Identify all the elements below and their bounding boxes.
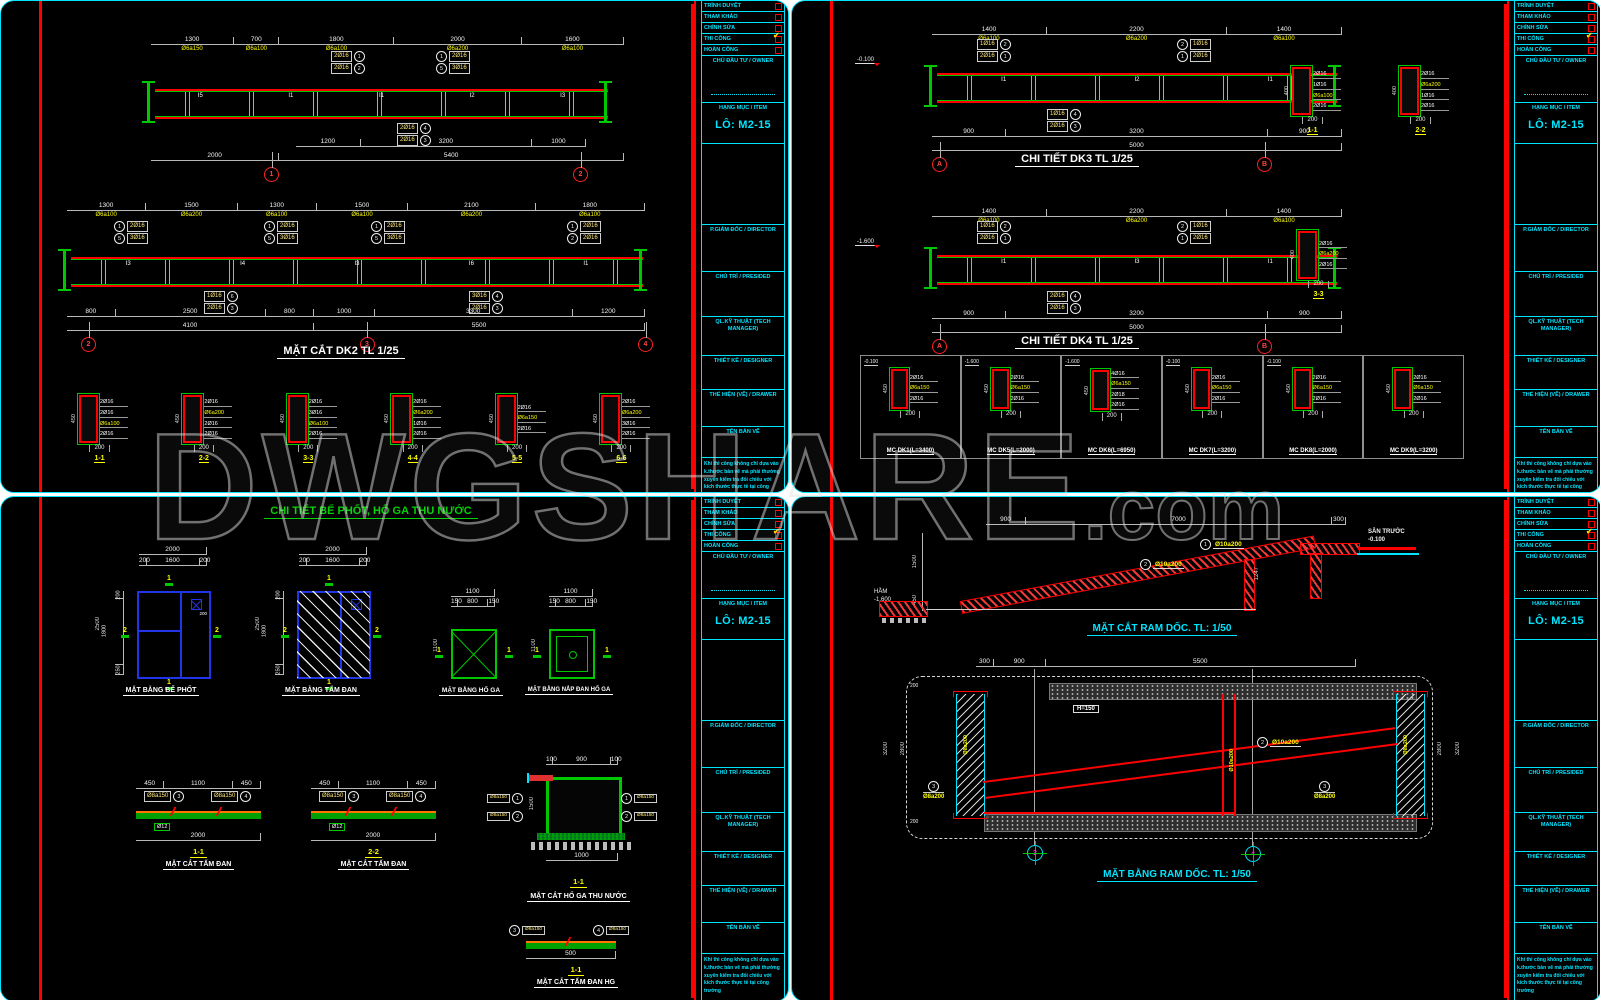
section-title: 4-4 — [408, 455, 418, 463]
detail-dk3: -0.100 1400Ø6a1002200Ø6a2001400Ø6a100 I1… — [847, 15, 1357, 175]
section-rect — [392, 395, 411, 443]
grid-bubble: 4 — [638, 337, 653, 352]
footing — [537, 833, 625, 840]
ramp-plan-title: MẶT BẰNG RAM DỐC. TL: 1/50 — [1007, 869, 1347, 880]
section-name: MẶT CẮT TẤM ĐAN — [126, 861, 271, 868]
rebar-callout: 2Ø1613Ø165 — [264, 221, 298, 245]
dk4-section: 400 2Ø16 Ø6a200 2Ø16 200 3-3 — [1290, 231, 1380, 299]
section-rect — [601, 395, 620, 443]
approval-row: CHỈNH SỬA — [702, 23, 784, 34]
dim-row: 5000 — [932, 143, 1342, 151]
beam-section-card: 450 2Ø16 2Ø16 Ø6a100 2Ø16 200 1-1 — [71, 395, 128, 463]
dim-row: 8002500800100033001200 — [67, 309, 645, 317]
mc-cell: -1.600 450 2Ø16 Ø6a150 2Ø16 200 MC DK5(L… — [961, 355, 1062, 459]
dim-row: 1300Ø6a150700Ø6a1001800Ø6a1002000Ø6a2001… — [151, 37, 624, 45]
mc-cell: -1.600 450 4Ø16 Ø6a150 2Ø18 2Ø16 200 MC … — [1061, 355, 1162, 459]
grid-bubble: B — [1257, 157, 1272, 172]
beam-elevation-1: 1300Ø6a150700Ø6a1001800Ø6a1002000Ø6a2001… — [81, 25, 646, 179]
left-footing — [879, 601, 928, 617]
sheet-top-right: -0.100 1400Ø6a1002200Ø6a2001400Ø6a100 I1… — [791, 0, 1600, 493]
lot-code: LÔ: M2-15 — [702, 615, 784, 627]
section-rect — [183, 395, 202, 443]
checkbox — [775, 510, 782, 517]
beam-section-card: 450 2Ø16 Ø6a150 2Ø16 200 5-5 — [489, 395, 546, 463]
sheet-top-left: 1300Ø6a150700Ø6a1001800Ø6a1002000Ø6a2001… — [0, 0, 789, 493]
lid-section-hg: 3Ø8a150 Ø8a1504 500 1-1 MẶT CẮT TẤM ĐAN … — [501, 925, 651, 997]
sheet-bl-content: CHI TIẾT BỂ PHỐT, HỐ GA THU NƯỚC 2000 20… — [1, 497, 690, 1000]
top-landing — [1300, 543, 1360, 555]
slab-section-2: Ø8a1503 Ø8a1504 4501100450 Ø12 2000 2-2 … — [301, 785, 446, 885]
concrete-band-bottom — [984, 814, 1417, 832]
designer-cell: THIẾT KẾ / DESIGNER — [702, 356, 784, 390]
dim-row: 20005400 — [151, 153, 624, 161]
elevation-mark: -1.600 — [855, 239, 876, 246]
ramp-plan: 3009005500 H=150 2Ø10a200 Ø10a200 3Ø8a20… — [877, 657, 1477, 892]
beam-section-card: 400 2Ø16 Ø6a200 2Ø16 200 3-3 — [1290, 231, 1347, 299]
grid-bubble: 2 — [573, 167, 588, 182]
mc-title: MC DK8(L=2000) — [1289, 448, 1337, 455]
drawing-title-dk2: MẶT CẮT DK2 TL 1/25 — [121, 345, 561, 357]
dim-segment: 1800Ø6a100 — [279, 37, 394, 45]
check-icon: ✔ — [773, 527, 780, 536]
rebar-callout: 3Ø8a200 — [1314, 781, 1335, 800]
president-cell: CHỦ TRÌ / PRESIDED — [702, 272, 784, 317]
lot-code: LÔ: M2-15 — [1515, 615, 1597, 627]
dim-segment: 2000Ø6a200 — [394, 37, 521, 45]
rebar-label: Ø12 — [154, 823, 170, 831]
lot-code: LÔ: M2-15 — [1515, 119, 1597, 131]
plan-title: MẶT BẰNG TẤM ĐAN — [251, 687, 391, 694]
section-title: 6-6 — [616, 455, 626, 463]
tech-cell: QL.KỸ THUẬT (TECH MANAGER) — [702, 317, 784, 356]
beam-elevation-2: 1300Ø6a1001500Ø6a2001300Ø6a1001500Ø6a100… — [19, 191, 659, 351]
checkbox: ✔ — [775, 532, 782, 539]
rebar-callout: 12Ø1653Ø16 — [114, 221, 148, 245]
approval-rows: TRÌNH DUYỆT THAM KHẢO CHỈNH SỬA — [702, 1, 784, 56]
rebar-callout: 2Ø10a200 — [1257, 737, 1301, 748]
beam-end-left — [63, 249, 73, 291]
approval-rows: TRÌNH DUYỆT THAM KHẢO CHỈNH SỬA — [1515, 1, 1597, 56]
wall-strip-left — [956, 694, 985, 816]
checkbox — [775, 543, 782, 550]
mc-title: MC DK5(L=2000) — [987, 448, 1035, 455]
dim-row: 9007000300 — [986, 517, 1346, 525]
rebar-callout: 2Ø10a200 — [1140, 559, 1184, 570]
plan-ho-ga: 1100 150800150 1100 1 1 MẶT BẰNG HỐ GA — [421, 589, 521, 701]
plan-nap-dan: 1100 150800150 1100 1 1 MẶT BẰNG NẮP ĐAN… — [519, 589, 619, 701]
dim-row: 1400Ø6a1002200Ø6a2001400Ø6a100 — [932, 27, 1342, 35]
dk3-sections: 400 2Ø16 1Ø16 Ø6a100 2Ø16 200 1-1 — [1284, 67, 1449, 135]
director-cell: P.GIÁM ĐỐC / DIRECTOR — [702, 225, 784, 272]
dim-row: 9003200900 — [932, 311, 1342, 319]
plan-be-phot: 2000 2001600200 2500 2001800250 200 1 1 … — [91, 547, 231, 699]
beam-marks: I1I2I1 — [937, 75, 1337, 85]
dim-segment: 1600Ø6a100 — [522, 37, 624, 45]
beam-section-card: 400 2Ø16 Ø6a200 1Ø16 2Ø16 200 2-2 — [1392, 67, 1449, 135]
elevation-mark: -1.600 — [1065, 359, 1079, 366]
beam-end-left — [147, 81, 157, 123]
elevation-mark: -0.100 — [1166, 359, 1180, 366]
rebar-callout: 1Ø10a200 — [1200, 539, 1244, 550]
empty-cell — [702, 144, 784, 225]
plan-title: MẶT BẰNG BỂ PHỐT — [91, 687, 231, 694]
sheet-tr-content: -0.100 1400Ø6a1002200Ø6a2001400Ø6a100 I1… — [792, 1, 1503, 492]
section-rect — [497, 395, 516, 443]
tank-outline: 200 — [137, 591, 211, 679]
checkbox — [1588, 543, 1595, 550]
checkbox — [1588, 3, 1595, 10]
beam-sections: 450 2Ø16 2Ø16 Ø6a100 2Ø16 200 1-1 — [71, 395, 650, 463]
beam-marks: I5I1I1I2I3 — [155, 91, 608, 101]
beam-marks: I1I3I1 — [937, 257, 1337, 267]
check-icon: ✔ — [773, 31, 780, 40]
mc-title: MC DK9(L=3200) — [1390, 448, 1438, 455]
mc-section-table: -0.100 450 2Ø16 Ø6a150 2Ø16 200 MC DK1(L… — [860, 355, 1464, 459]
ramp-section-title: MẶT CẮT RAM DỐC. TL: 1/50 — [1002, 623, 1322, 634]
plan-tam-dan: 2000 2001600200 2500 2001800250 1 1 2 2 … — [251, 547, 391, 699]
checkbox — [775, 14, 782, 21]
mc-title: MC DK6(L=6950) — [1088, 448, 1136, 455]
checkbox — [1588, 510, 1595, 517]
title-block: TRÌNH DUYỆT THAM KHẢO CHỈNH SỬA — [694, 1, 788, 492]
section-title: 2-2 — [199, 455, 209, 463]
approval-rows: TRÌNH DUYỆT THAM KHẢO CHỈNH SỬA — [702, 497, 784, 552]
grid-bubble: 1 — [264, 167, 279, 182]
title-block: TRÌNH DUYỆT THAM KHẢO CHỈNH SỬA — [694, 497, 788, 1000]
section-number: 1-1 — [126, 847, 271, 856]
checkbox — [775, 47, 782, 54]
elevation-mark: -1.600 — [965, 359, 979, 366]
hatch-overlay — [297, 591, 370, 678]
rebar-callout: 3Ø8a200 — [923, 781, 944, 800]
rebar-callout: 1Ø1622Ø161 — [1177, 39, 1211, 63]
approval-row: THAM KHẢO — [702, 12, 784, 23]
check-icon: ✔ — [1586, 527, 1593, 536]
checkbox — [1588, 499, 1595, 506]
dim-row: 1400Ø6a1002200Ø6a2001400Ø6a100 — [932, 209, 1342, 217]
rebar-callout: 2Ø1613Ø165 — [436, 51, 470, 75]
dim-segment: 700Ø6a100 — [234, 37, 279, 45]
site-note: Khi thi công không chỉ dựa vào k.thước b… — [702, 458, 784, 493]
grid-bubble: 4 — [1245, 846, 1261, 862]
drawer-cell: THỂ HIỆN (VẼ) / DRAWER — [702, 390, 784, 427]
dim-row: 9003200900 — [932, 129, 1342, 137]
rebar-callout: 2Ø1612Ø162 — [567, 221, 601, 245]
wall-strip-right — [1396, 694, 1425, 816]
grid-bubbles: 12 — [264, 167, 588, 182]
section-rect — [79, 395, 98, 443]
slab-bar — [136, 811, 261, 819]
section-mark: 1 — [165, 575, 173, 586]
beam-section-card: 450 2Ø16 Ø6a200 2Ø16 2Ø16 200 2-2 — [175, 395, 232, 463]
rebar-callout: 2Ø1612Ø162 — [331, 51, 365, 75]
rebar-callout-vertical: Ø10a200 — [1229, 749, 1235, 772]
checkbox — [1588, 47, 1595, 54]
checkbox: ✔ — [775, 36, 782, 43]
sheet-bottom-left: CHI TIẾT BỂ PHỐT, HỐ GA THU NƯỚC 2000 20… — [0, 496, 789, 1000]
section-title: 1-1 — [94, 455, 104, 463]
beam-marks: I3I4I3I6I1 — [71, 259, 643, 269]
item-cell: HẠNG MỤC / ITEMLÔ: M2-15 — [702, 103, 784, 144]
dim-row: 120032001000 — [296, 139, 586, 147]
checkbox: ✔ — [1588, 532, 1595, 539]
front-yard-label: SÂN TRƯỚC-0.100 — [1368, 529, 1405, 545]
mc-cell: -0.100 450 2Ø16 Ø6a150 2Ø16 200 MC DK8(L… — [1263, 355, 1364, 459]
beam-end-right — [639, 249, 649, 291]
pit-walls — [546, 777, 622, 839]
cad-preview: 1300Ø6a150700Ø6a1001800Ø6a1002000Ø6a2001… — [0, 0, 1600, 1000]
height-label: H=150 — [1073, 705, 1099, 713]
dim-row: 3009005500 — [976, 659, 1356, 667]
beam-section-card: 400 2Ø16 1Ø16 Ø6a100 2Ø16 200 1-1 — [1284, 67, 1341, 135]
approval-row: THI CÔNG ✔ — [702, 34, 784, 45]
sheet-tl-content: 1300Ø6a150700Ø6a1001800Ø6a1002000Ø6a2001… — [1, 1, 690, 492]
approval-row: HOÀN CÔNG — [702, 45, 784, 56]
sheet-title: CHI TIẾT BỂ PHỐT, HỐ GA THU NƯỚC — [111, 505, 631, 517]
beam-section-card: 450 2Ø16 3Ø16 Ø6a100 2Ø16 200 3-3 — [280, 395, 337, 463]
sheet-bottom-right: 9007000300 HẦM-1.600 1500 450 SÂN TRƯỚC-… — [791, 496, 1600, 1000]
dim-segment: 1300Ø6a150 — [151, 37, 234, 45]
rebar-callout: 12Ø1653Ø16 — [371, 221, 405, 245]
right-column — [1310, 553, 1322, 599]
beam-section-card: 450 2Ø16 Ø6a200 1Ø16 2Ø16 200 4-4 — [384, 395, 441, 463]
grid-bubble: B — [1257, 339, 1272, 354]
sheet-br-content: 9007000300 HẦM-1.600 1500 450 SÂN TRƯỚC-… — [792, 497, 1503, 1000]
mc-title: MC DK7(L=3200) — [1189, 448, 1237, 455]
pit-section: 100900100 1500 Ø8a1501 Ø8a1502 Ø8a1501 Ø… — [491, 749, 666, 919]
grid-bubble: 2 — [81, 337, 96, 352]
elevation-mark: -0.100 — [1267, 359, 1281, 366]
ramp-slab — [960, 536, 1316, 614]
title-block: TRÌNH DUYỆT THAM KHẢO CHỈNH SỬA — [1507, 1, 1600, 492]
approval-rows: TRÌNH DUYỆT THAM KHẢO CHỈNH SỬA — [1515, 497, 1597, 552]
inlet-pipe — [527, 775, 553, 781]
mc-cell: 450 2Ø16 Ø6a150 2Ø16 200 MC DK9(L=3200) — [1363, 355, 1464, 459]
drawing-title-dk4: CHI TIẾT DK4 TL 1/25 — [942, 335, 1212, 347]
checkbox: ✔ — [1588, 36, 1595, 43]
drawing-name-cell: TÊN BẢN VẼ — [702, 427, 784, 458]
dim-row: 41005500 — [67, 323, 645, 331]
dim-row: 5000 — [932, 325, 1342, 333]
pipe-hole — [191, 599, 202, 610]
rebar-callout: 1Ø1622Ø161 — [977, 39, 1011, 63]
lid-outline — [549, 629, 595, 679]
title-block: TRÌNH DUYỆT THAM KHẢO CHỈNH SỬA — [1507, 497, 1600, 1000]
grid-bubble: 3 — [1027, 845, 1043, 861]
detail-dk4: -1.600 1400Ø6a1002200Ø6a2001400Ø6a100 I1… — [847, 197, 1357, 357]
section-rect — [288, 395, 307, 443]
elevation-mark: -0.100 — [864, 359, 878, 366]
ramp-section: 9007000300 HẦM-1.600 1500 450 SÂN TRƯỚC-… — [852, 505, 1472, 645]
approval-row: TRÌNH DUYỆT — [702, 1, 784, 12]
rebar-callout: 1Ø1622Ø161 — [1177, 221, 1211, 245]
check-icon: ✔ — [1586, 31, 1593, 40]
slab-section-1: Ø8a1503 Ø8a1504 4501100450 Ø12 2000 1-1 … — [126, 785, 271, 885]
section-title: 5-5 — [512, 455, 522, 463]
plan-title: MẶT BẰNG NẮP ĐAN HỐ GA — [505, 687, 633, 693]
elevation-mark: -0.100 — [855, 57, 876, 64]
mc-cell: -0.100 450 2Ø16 Ø6a150 2Ø16 200 MC DK1(L… — [860, 355, 961, 459]
rebar-callout: 1Ø1622Ø161 — [977, 221, 1011, 245]
beam-end-right — [604, 81, 614, 123]
section-title: 3-3 — [303, 455, 313, 463]
checkbox — [775, 3, 782, 10]
drawing-title-dk3: CHI TIẾT DK3 TL 1/25 — [942, 153, 1212, 165]
checkbox — [775, 499, 782, 506]
pit-outline — [451, 629, 497, 679]
beam-section-card: 450 2Ø16 Ø6a200 3Ø16 2Ø16 200 6-6 — [593, 395, 650, 463]
lift-hole — [569, 651, 577, 659]
checkbox — [1588, 14, 1595, 21]
stone-base — [531, 842, 631, 850]
owner-cell: CHỦ ĐẦU TƯ / OWNER — [702, 56, 784, 103]
mc-title: MC DK1(L=3400) — [887, 448, 935, 455]
lot-code: LÔ: M2-15 — [702, 119, 784, 131]
dim-row: 1300Ø6a1001500Ø6a2001300Ø6a1001500Ø6a100… — [67, 203, 645, 211]
mc-cell: -0.100 450 2Ø16 Ø6a150 2Ø16 200 MC DK7(L… — [1162, 355, 1263, 459]
